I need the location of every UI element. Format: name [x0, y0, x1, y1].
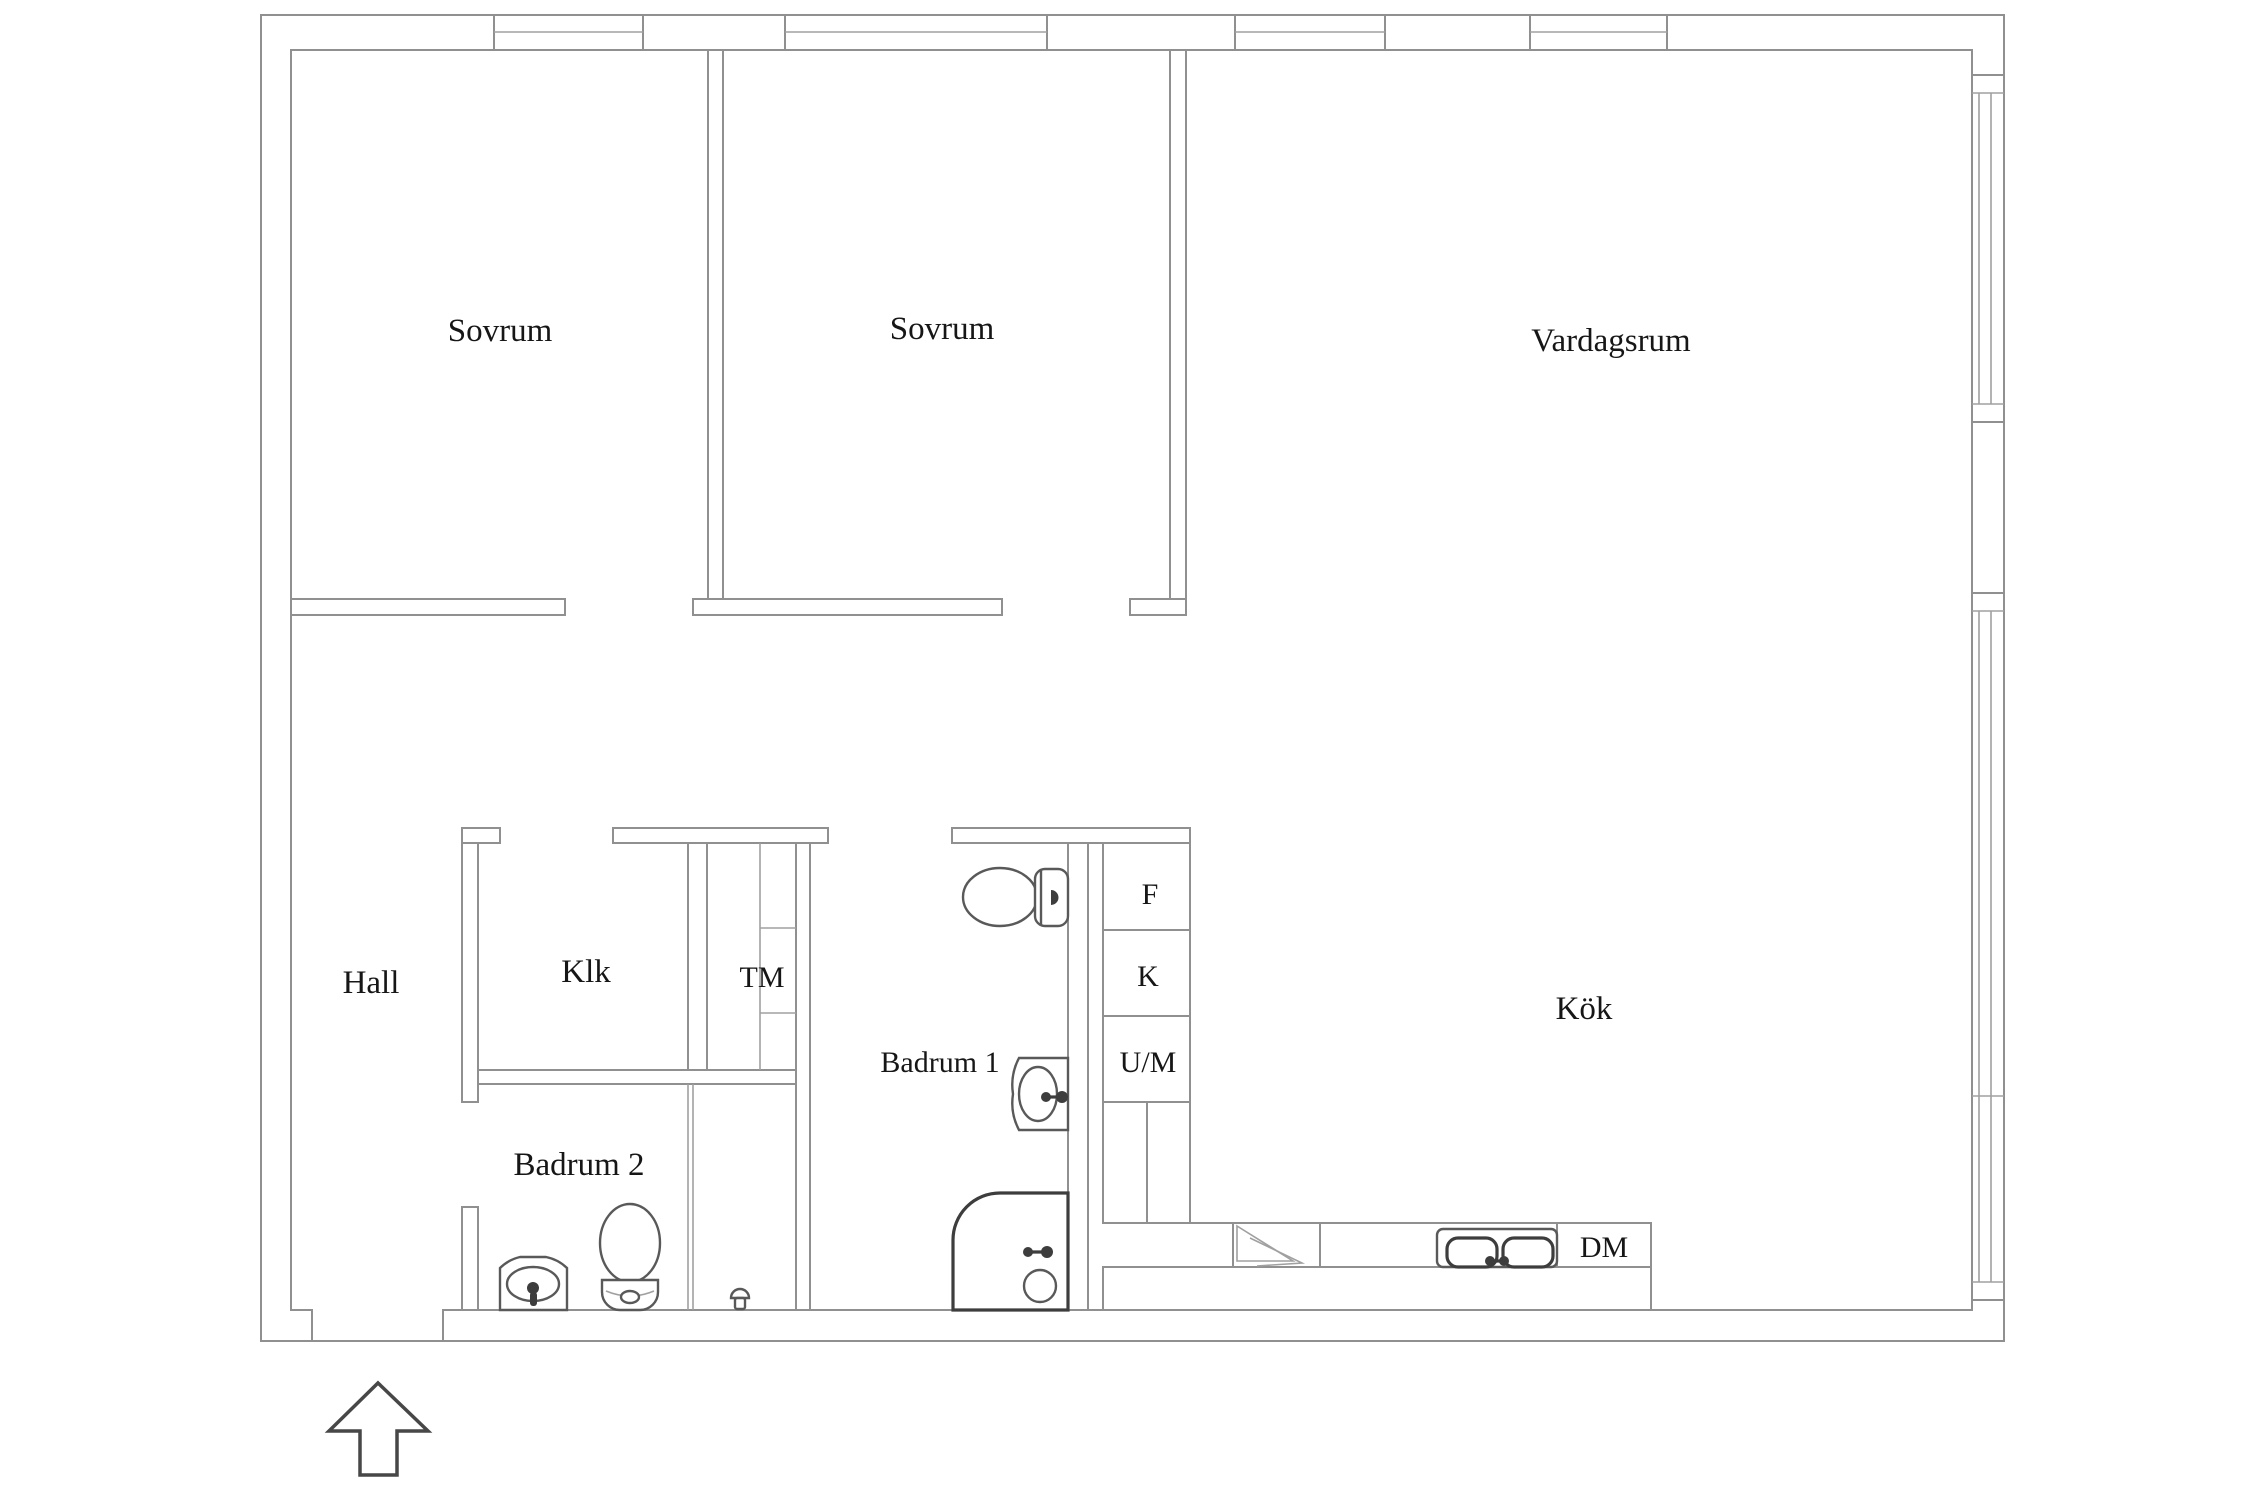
window-top-2	[785, 15, 1047, 50]
bathroom-sink-icon	[1012, 1058, 1068, 1130]
window-right-2	[1972, 593, 2004, 1300]
room-label-klk: Klk	[561, 954, 611, 990]
bathtub-icon	[953, 1193, 1068, 1310]
entrance-opening	[312, 1306, 443, 1344]
appliance-label-fridge: K	[1137, 960, 1159, 993]
toilet-icon	[600, 1204, 660, 1310]
window-top-4	[1530, 15, 1667, 50]
window-right-1	[1972, 75, 2004, 422]
floor-plan-page: Sovrum Sovrum Vardagsrum Hall Klk TM Bad…	[0, 0, 2250, 1500]
room-label-kok: Kök	[1556, 991, 1613, 1027]
shower-glass-partition	[688, 1084, 693, 1310]
entrance-arrow-icon	[329, 1383, 428, 1475]
wardrobe-shelves-icon	[760, 843, 796, 1070]
window-top-3	[1235, 15, 1385, 50]
kitchen-sink-icon	[1437, 1229, 1557, 1267]
room-label-hall: Hall	[343, 965, 400, 1001]
stove-icon	[1233, 1223, 1320, 1267]
shower-mixer-icon	[731, 1289, 749, 1309]
exterior-walls	[261, 15, 2004, 1341]
appliance-label-dishwasher: DM	[1580, 1231, 1628, 1264]
floor-plan-drawing: Sovrum Sovrum Vardagsrum Hall Klk TM Bad…	[0, 0, 2250, 1500]
room-label-tm: TM	[740, 961, 785, 994]
room-label-sovrum-1: Sovrum	[448, 313, 553, 349]
room-label-badrum-1: Badrum 1	[880, 1046, 999, 1079]
appliance-label-oven-microwave: U/M	[1120, 1046, 1177, 1079]
room-label-badrum-2: Badrum 2	[513, 1147, 644, 1183]
room-label-sovrum-2: Sovrum	[890, 311, 995, 347]
kitchen-counter	[1103, 1102, 1651, 1310]
window-top-1	[494, 15, 643, 50]
appliance-label-freezer: F	[1142, 878, 1159, 911]
room-label-vardagsrum: Vardagsrum	[1531, 323, 1691, 359]
bathroom-sink-icon	[500, 1257, 567, 1310]
toilet-icon	[963, 868, 1068, 926]
